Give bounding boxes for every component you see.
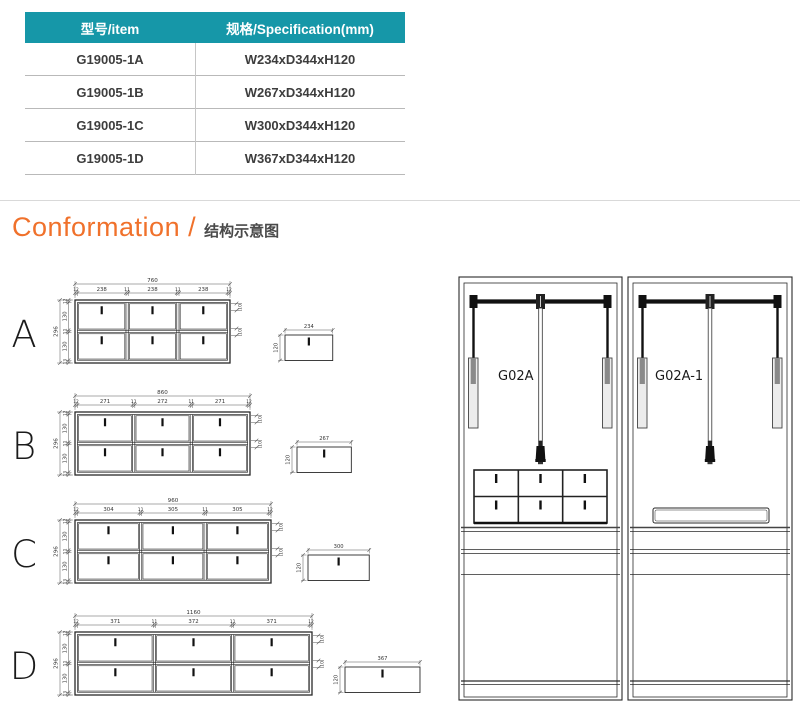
dim-gap: 11 xyxy=(151,619,157,625)
dim-side-width: 234 xyxy=(304,324,315,330)
unit-letter: C xyxy=(11,533,37,576)
lift-handle xyxy=(705,459,715,462)
dim-right-gap: 10 xyxy=(279,549,285,555)
drawer-handle-icon xyxy=(202,306,204,314)
drawer-handle-icon xyxy=(101,336,103,344)
dim-drawer-height: 130 xyxy=(62,561,68,571)
dim-drawer-height: 130 xyxy=(62,311,68,321)
drawer-handle-icon xyxy=(381,670,383,678)
dim-side-height: 120 xyxy=(334,675,340,685)
drawer-handle-icon xyxy=(338,558,340,566)
drawer-handle-icon xyxy=(107,526,109,534)
dim-drawer-width: 238 xyxy=(97,287,108,293)
rail-endcap xyxy=(639,295,647,308)
dim-right-gap: 10 xyxy=(279,524,285,530)
drawer-handle-icon xyxy=(107,556,109,564)
drawing-d: D116012121111371372371296121301113013101… xyxy=(10,610,422,697)
dim-edge: 12 xyxy=(73,399,79,405)
drawer-handle-icon xyxy=(236,526,238,534)
dim-gap: 11 xyxy=(131,399,137,405)
dim-drawer-height: 130 xyxy=(62,643,68,653)
dim-total-width: 1160 xyxy=(186,610,201,616)
dim-edge: 12 xyxy=(308,619,314,625)
dim-side-height: 120 xyxy=(286,455,292,465)
dim-edge: 12 xyxy=(267,507,273,513)
dim-v-edge: 13 xyxy=(62,359,68,365)
lift-handle xyxy=(705,446,715,459)
dim-drawer-width: 271 xyxy=(100,399,110,405)
dim-total-height: 296 xyxy=(54,658,60,669)
drawer-handle-icon xyxy=(104,448,106,456)
drawer-handle-icon xyxy=(219,418,221,426)
dim-drawer-height: 130 xyxy=(62,453,68,463)
drawer-handle-icon xyxy=(495,474,497,483)
drawer-handle-icon xyxy=(202,336,204,344)
dim-v-gap: 11 xyxy=(62,548,68,554)
drawer-handle-icon xyxy=(271,638,273,646)
lift-handle xyxy=(538,441,542,446)
dim-drawer-width: 271 xyxy=(215,399,225,405)
drawer-handle-icon xyxy=(114,638,116,646)
drawer-handle-icon xyxy=(192,668,194,676)
dim-v-edge: 12 xyxy=(62,410,68,416)
dim-gap: 11 xyxy=(138,507,144,513)
dim-drawer-height: 130 xyxy=(62,423,68,433)
drawer-handle-icon xyxy=(172,526,174,534)
dim-drawer-width: 372 xyxy=(188,619,198,625)
dim-right-gap: 10 xyxy=(320,661,326,667)
unit-letter: A xyxy=(11,313,36,356)
drawer-handle-icon xyxy=(236,556,238,564)
drawer-handle-icon xyxy=(219,448,221,456)
lift-handle xyxy=(708,462,713,464)
drawing-c: C960121211113043053052961213011130131010… xyxy=(11,498,371,585)
dim-right-gap: 10 xyxy=(258,441,264,447)
drawer-handle-icon xyxy=(308,338,310,346)
dim-v-gap: 11 xyxy=(62,440,68,446)
dim-drawer-height: 130 xyxy=(62,341,68,351)
drawer-handle-icon xyxy=(161,448,163,456)
drawing-b: B860121211112712722712961213011130131010… xyxy=(12,390,353,477)
lift-handle xyxy=(535,459,545,462)
dim-v-edge: 12 xyxy=(62,630,68,636)
dim-side-height: 120 xyxy=(297,563,303,573)
drawer-handle-icon xyxy=(172,556,174,564)
dim-total-width: 760 xyxy=(147,278,158,284)
lift-handle xyxy=(708,441,712,446)
drawer-handle-icon xyxy=(584,474,586,483)
lift-rod xyxy=(708,308,712,441)
cabinet-label: G02A-1 xyxy=(655,369,703,384)
dim-v-edge: 12 xyxy=(62,518,68,524)
dim-drawer-width: 371 xyxy=(267,619,277,625)
dim-right-gap: 10 xyxy=(258,416,264,422)
drawer-handle-icon xyxy=(151,306,153,314)
dim-v-gap: 11 xyxy=(62,660,68,666)
dim-edge: 12 xyxy=(73,507,79,513)
drawer-handle-icon xyxy=(584,501,586,510)
dim-side-width: 267 xyxy=(319,436,329,442)
dim-drawer-width: 238 xyxy=(198,287,209,293)
 xyxy=(655,510,767,521)
dim-gap: 11 xyxy=(230,619,236,625)
unit-letter: D xyxy=(10,645,39,688)
dim-right-gap: 10 xyxy=(238,329,244,335)
dim-drawer-width: 305 xyxy=(232,507,242,513)
dim-drawer-width: 371 xyxy=(110,619,120,625)
drawer-handle-icon xyxy=(271,668,273,676)
dim-total-height: 296 xyxy=(54,546,60,557)
drawer-handle-icon xyxy=(104,418,106,426)
conformation-diagram: A760121211112382382382961213011130131010… xyxy=(0,0,800,711)
lift-strut-slide xyxy=(775,358,780,384)
dim-gap: 11 xyxy=(202,507,208,513)
rail-endcap xyxy=(774,295,782,308)
lift-rod xyxy=(539,308,543,441)
dim-v-edge: 12 xyxy=(62,298,68,304)
rail-endcap xyxy=(604,295,612,308)
dim-side-width: 300 xyxy=(334,544,344,550)
lift-strut-slide xyxy=(471,358,476,384)
dim-v-gap: 11 xyxy=(62,328,68,334)
dim-drawer-width: 305 xyxy=(168,507,178,513)
dim-right-gap: 10 xyxy=(320,636,326,642)
drawer-handle-icon xyxy=(539,501,541,510)
drawer-handle-icon xyxy=(323,450,325,458)
lift-strut-slide xyxy=(605,358,610,384)
dim-edge: 12 xyxy=(73,287,79,293)
dim-total-height: 296 xyxy=(54,326,60,337)
drawer-handle-icon xyxy=(161,418,163,426)
dim-drawer-width: 304 xyxy=(103,507,114,513)
unit-letter: B xyxy=(12,425,36,468)
lift-handle xyxy=(536,446,546,459)
dim-drawer-width: 272 xyxy=(157,399,167,405)
cabinet-label: G02A xyxy=(498,369,534,384)
dim-gap: 11 xyxy=(175,287,181,293)
dim-total-width: 860 xyxy=(157,390,168,396)
dim-edge: 12 xyxy=(73,619,79,625)
dim-gap: 11 xyxy=(124,287,130,293)
dim-side-height: 120 xyxy=(274,343,280,353)
lift-strut-slide xyxy=(640,358,645,384)
dim-total-height: 296 xyxy=(54,438,60,449)
lift-handle xyxy=(538,462,543,464)
dim-drawer-height: 130 xyxy=(62,673,68,683)
dim-edge: 12 xyxy=(226,287,232,293)
dim-drawer-height: 130 xyxy=(62,531,68,541)
rail-endcap xyxy=(470,295,478,308)
dim-v-edge: 13 xyxy=(62,471,68,477)
cabinet-g02a-1: G02A-1 xyxy=(628,277,792,700)
drawer-handle-icon xyxy=(114,668,116,676)
cabinet-g02a: G02A xyxy=(459,277,622,700)
dim-side-width: 367 xyxy=(378,656,388,662)
dim-drawer-width: 238 xyxy=(147,287,158,293)
drawer-handle-icon xyxy=(101,306,103,314)
drawing-a: A760121211112382382382961213011130131010… xyxy=(11,278,334,365)
dim-total-width: 960 xyxy=(168,498,179,504)
dim-v-edge: 13 xyxy=(62,579,68,585)
dim-right-gap: 10 xyxy=(238,304,244,310)
drawer-handle-icon xyxy=(495,501,497,510)
catalog-page: 型号/item 规格/Specification(mm) G19005-1AW2… xyxy=(0,0,800,711)
dim-v-edge: 13 xyxy=(62,691,68,697)
dim-edge: 12 xyxy=(246,399,252,405)
drawer-handle-icon xyxy=(151,336,153,344)
dim-gap: 11 xyxy=(188,399,194,405)
drawer-handle-icon xyxy=(192,638,194,646)
drawer-handle-icon xyxy=(539,474,541,483)
